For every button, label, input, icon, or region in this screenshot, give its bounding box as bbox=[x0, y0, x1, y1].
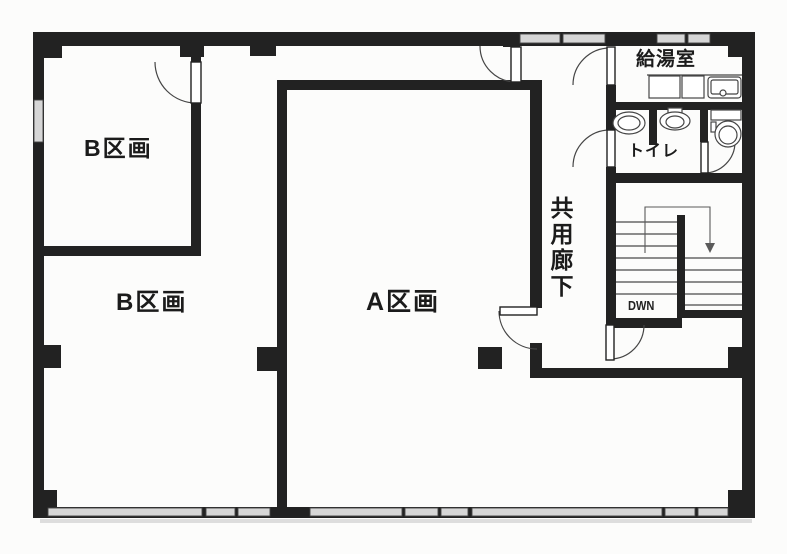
wall-toilet-stub-2 bbox=[700, 107, 708, 142]
door-leaf bbox=[607, 47, 615, 85]
window bbox=[688, 34, 710, 43]
door-stairwell bbox=[606, 325, 644, 360]
floor-plan-page: B区画 B区画 A区画 共用廊下 給湯室 トイレ DWN bbox=[0, 0, 787, 554]
pillar bbox=[728, 490, 755, 518]
door-swing-arc bbox=[610, 325, 644, 359]
label-stairs-down: DWN bbox=[628, 299, 654, 312]
door-leaf bbox=[606, 325, 614, 360]
window bbox=[48, 508, 202, 516]
wall-toilet-south bbox=[606, 173, 755, 183]
window bbox=[520, 34, 560, 43]
door-leaf bbox=[511, 47, 521, 82]
wall-corridor-west-upper bbox=[530, 80, 542, 308]
door-swing-arc bbox=[573, 130, 610, 167]
pillar bbox=[250, 32, 276, 56]
door-a-section-entry bbox=[499, 307, 537, 349]
window bbox=[657, 34, 685, 43]
wall-toilet-stub-1 bbox=[649, 110, 657, 145]
window bbox=[405, 508, 438, 516]
label-section-b-upper: B区画 bbox=[84, 137, 153, 160]
scan-shadow bbox=[40, 519, 752, 523]
window bbox=[698, 508, 728, 516]
window bbox=[472, 508, 662, 516]
door-leaf bbox=[191, 62, 201, 103]
wall-stair-foot bbox=[677, 310, 747, 318]
wc-bowl-inner bbox=[719, 126, 737, 144]
label-shared-corridor: 共用廊下 bbox=[548, 196, 571, 300]
door-leaf bbox=[500, 307, 537, 315]
kitchen-faucet bbox=[720, 90, 726, 96]
interior-walls bbox=[33, 44, 755, 510]
wall-a-north bbox=[277, 80, 542, 90]
stair-treads-right-flight bbox=[685, 258, 742, 305]
label-section-a: A区画 bbox=[366, 290, 440, 315]
wall-corridor-south bbox=[530, 368, 755, 378]
label-section-b-lower: B区画 bbox=[116, 291, 187, 315]
window bbox=[310, 508, 402, 516]
door-swing-arc bbox=[573, 48, 610, 85]
pillar bbox=[478, 347, 502, 369]
wall-stair-divider bbox=[677, 215, 685, 318]
wall-corridor-west-lower bbox=[530, 343, 542, 368]
wall-b-upper-south bbox=[33, 246, 201, 256]
wall-b-upper-east-top bbox=[191, 44, 201, 62]
door-b-upper-room bbox=[155, 62, 201, 103]
window bbox=[665, 508, 695, 516]
counter-cabinet bbox=[682, 76, 704, 98]
pillar bbox=[33, 345, 61, 368]
label-kitchenette: 給湯室 bbox=[636, 50, 696, 69]
door-b-section-entry bbox=[480, 46, 521, 82]
label-toilet: トイレ bbox=[628, 144, 679, 160]
stair-treads-left-flight bbox=[616, 222, 677, 294]
wall-service-west-2 bbox=[606, 167, 616, 325]
window bbox=[441, 508, 468, 516]
pillar bbox=[503, 32, 520, 47]
counter-cabinet bbox=[649, 76, 680, 98]
urinal-bowl bbox=[666, 116, 684, 128]
wash-basin-bowl bbox=[618, 116, 640, 130]
stair-direction-arrow bbox=[705, 243, 715, 253]
pillar bbox=[728, 32, 755, 57]
window bbox=[34, 100, 43, 142]
pillar bbox=[33, 32, 62, 58]
window bbox=[238, 508, 270, 516]
door-leaf bbox=[701, 142, 708, 173]
door-toilet-room bbox=[573, 130, 615, 167]
floor-plan-drawing bbox=[0, 0, 787, 554]
wall-b-a-divider bbox=[277, 80, 287, 510]
wall-top bbox=[33, 32, 755, 46]
door-swing-arc bbox=[155, 62, 196, 103]
window bbox=[206, 508, 235, 516]
wall-b-upper-east bbox=[191, 103, 201, 256]
window bbox=[563, 34, 605, 43]
door-kitchenette bbox=[573, 47, 615, 85]
door-leaf bbox=[607, 130, 615, 167]
kitchenette-fixtures bbox=[647, 75, 742, 98]
toilet-fixtures bbox=[613, 108, 741, 147]
wc-tank bbox=[711, 110, 741, 120]
